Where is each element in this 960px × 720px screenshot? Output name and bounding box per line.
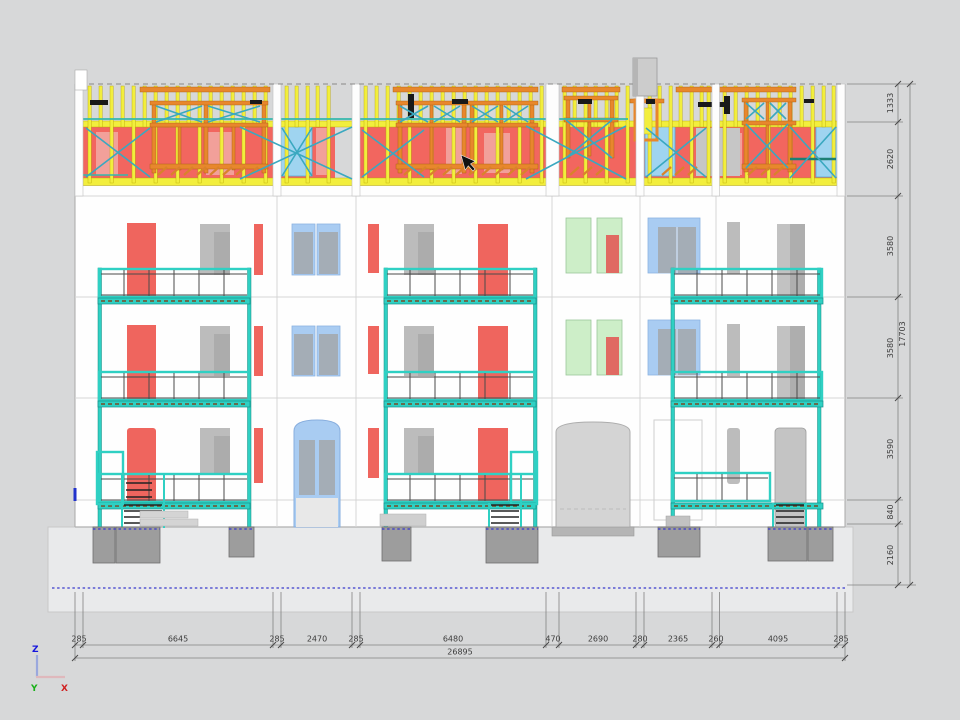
dim-label: 280: [632, 635, 647, 644]
cad-viewport[interactable]: 285 6645 285 2470 285 6480 470 2690 280 …: [0, 0, 960, 720]
dim-label: 2470: [307, 635, 327, 644]
dim-label: 3590: [886, 439, 895, 459]
dim-total-label: 26895: [447, 648, 472, 657]
axis-z-label: Z: [32, 645, 39, 655]
dim-label: 840: [886, 504, 895, 519]
rear-door-gray: [775, 428, 806, 528]
dim-total-label: 17703: [898, 321, 907, 346]
dim-label: 285: [833, 635, 848, 644]
dim-label: 3580: [886, 338, 895, 358]
dim-label: 4095: [768, 635, 788, 644]
selection-mark: [74, 488, 77, 501]
roof-edge-box: [75, 70, 87, 90]
dim-label: 2620: [886, 149, 895, 169]
dim-label: 285: [348, 635, 363, 644]
dim-label: 2160: [886, 545, 895, 565]
timber-attic-band: [80, 86, 837, 186]
dim-label: 1333: [886, 93, 895, 113]
entrance-gate: [556, 422, 630, 530]
ground-zone: [48, 527, 853, 612]
dim-label: 6480: [443, 635, 463, 644]
dim-label: 2365: [668, 635, 688, 644]
axis-x-label: X: [61, 684, 68, 694]
dim-label: 285: [71, 635, 86, 644]
dim-label: 260: [708, 635, 723, 644]
dim-label: 470: [545, 635, 560, 644]
dim-label: 2690: [588, 635, 608, 644]
axis-y-label: Y: [30, 684, 38, 694]
dim-label: 6645: [168, 635, 188, 644]
dim-label: 3580: [886, 236, 895, 256]
dim-label: 285: [269, 635, 284, 644]
chimney-shade: [633, 58, 638, 96]
